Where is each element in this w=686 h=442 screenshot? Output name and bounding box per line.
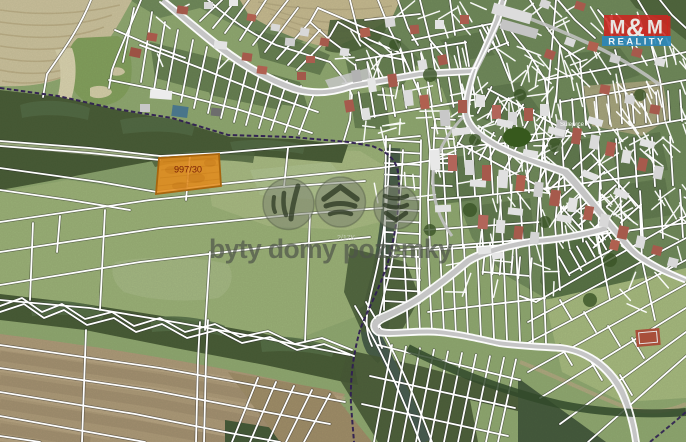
svg-text:997/30: 997/30 xyxy=(174,165,202,175)
svg-text:byty domy pozemky: byty domy pozemky xyxy=(209,234,453,264)
svg-text:M: M xyxy=(610,18,626,39)
svg-text:REALITY: REALITY xyxy=(608,37,665,48)
svg-text:Sulejvice: Sulejvice xyxy=(560,122,585,128)
svg-text:M: M xyxy=(647,18,663,39)
